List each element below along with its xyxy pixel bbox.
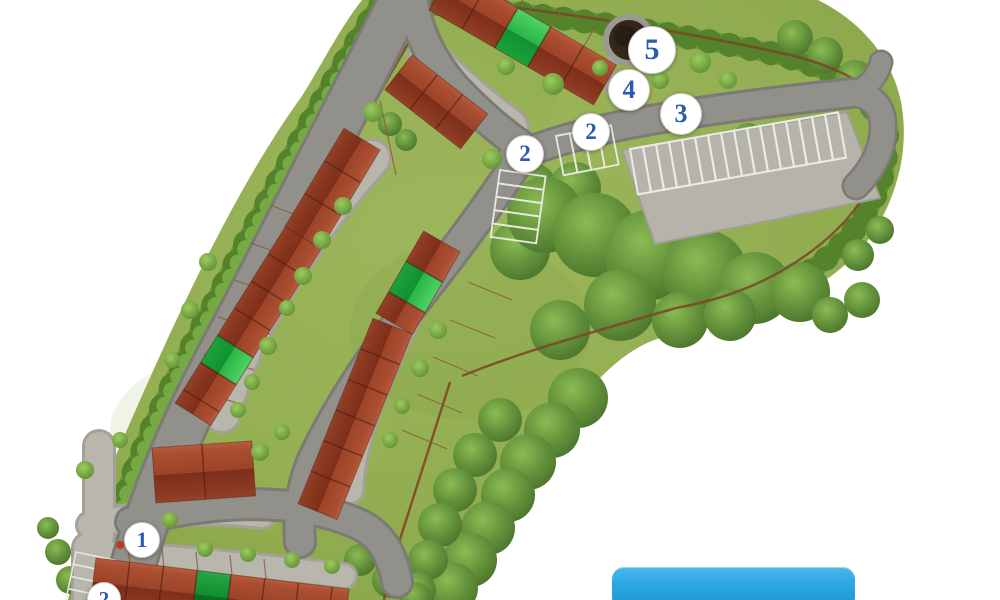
marker-label: 4 [623, 75, 636, 105]
map-marker-5[interactable]: 5 [628, 26, 676, 74]
map-marker-1[interactable]: 1 [124, 522, 160, 558]
marker-label: 2 [99, 587, 110, 600]
map-marker-4[interactable]: 4 [608, 69, 650, 111]
marker-label: 1 [137, 527, 148, 553]
marker-label: 2 [519, 141, 531, 167]
map-marker-2-east[interactable]: 2 [572, 113, 610, 151]
marker-label: 3 [675, 99, 688, 129]
map-marker-3[interactable]: 3 [660, 93, 702, 135]
marker-label: 2 [585, 119, 597, 145]
map-marker-2-west[interactable]: 2 [506, 135, 544, 173]
marker-label: 5 [645, 33, 660, 67]
site-plan-canvas: 5 4 3 2 2 1 2 [0, 0, 1000, 600]
building-semi-bottomleft [152, 441, 256, 503]
entrance-dot [116, 541, 124, 549]
cta-button[interactable] [612, 567, 855, 600]
site-plan-map [0, 0, 1000, 600]
